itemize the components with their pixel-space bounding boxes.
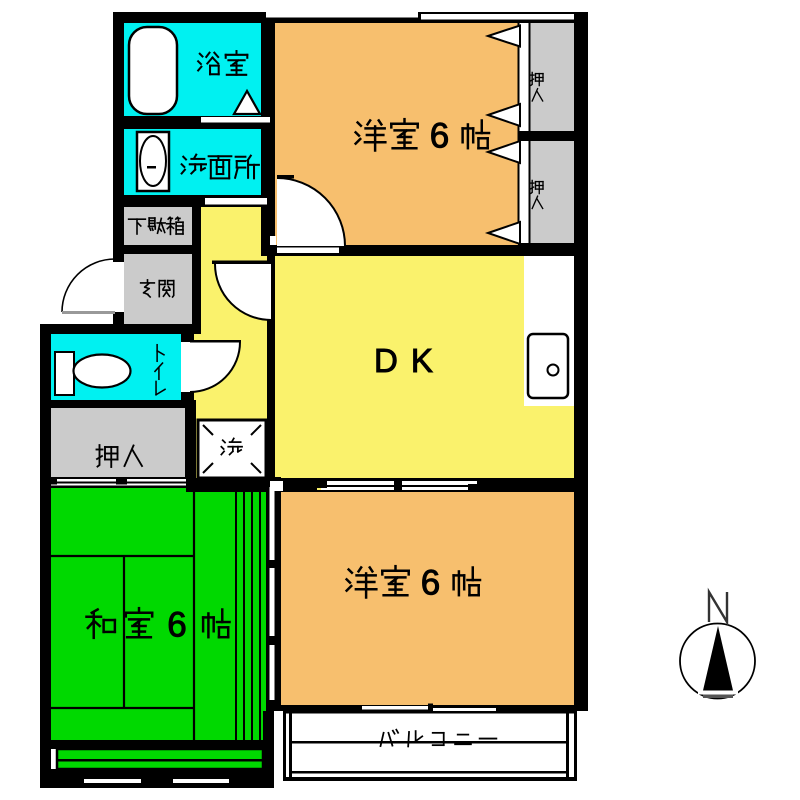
svg-text:6: 6 xyxy=(421,564,440,603)
svg-text:DK: DK xyxy=(374,342,446,379)
svg-text:6: 6 xyxy=(430,117,449,156)
svg-text:6: 6 xyxy=(167,606,186,645)
